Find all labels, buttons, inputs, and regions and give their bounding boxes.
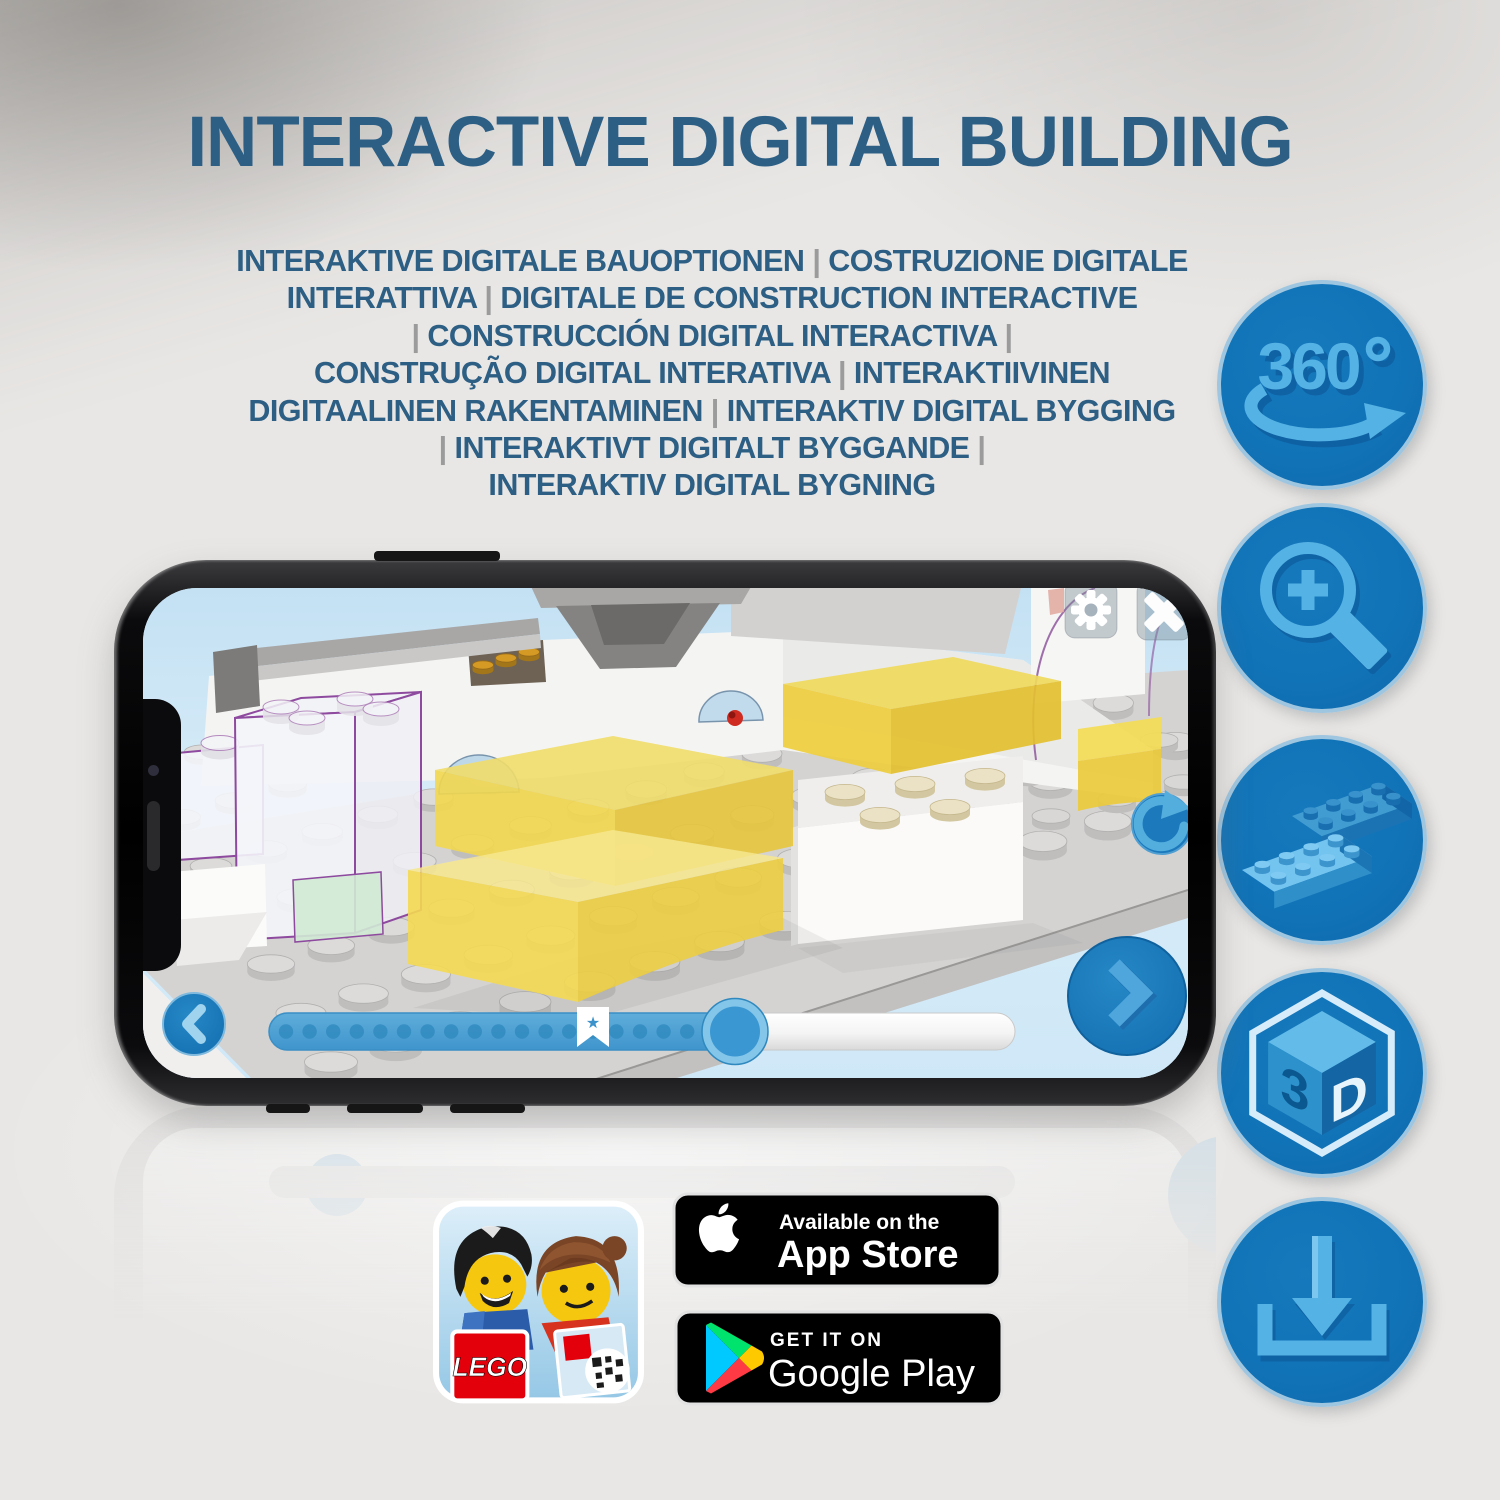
svg-text:LEGO: LEGO	[452, 1352, 527, 1382]
svg-text:App Store: App Store	[777, 1234, 959, 1276]
svg-text:360: 360	[1257, 329, 1358, 403]
svg-text:GET IT ON: GET IT ON	[770, 1330, 883, 1351]
svg-text:★: ★	[586, 1015, 600, 1032]
svg-text:Available on the: Available on the	[779, 1211, 939, 1234]
svg-text:Google Play: Google Play	[768, 1353, 975, 1395]
svg-text:3: 3	[1281, 1054, 1310, 1125]
